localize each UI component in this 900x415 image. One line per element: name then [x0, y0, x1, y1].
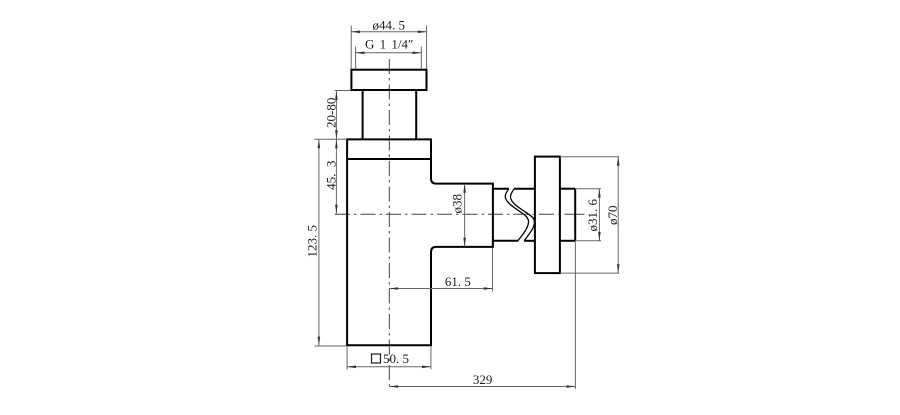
svg-text:ø44. 5: ø44. 5 — [372, 18, 405, 33]
svg-text:329: 329 — [473, 372, 493, 387]
svg-text:61. 5: 61. 5 — [445, 274, 471, 289]
svg-text:45. 3: 45. 3 — [323, 161, 338, 190]
svg-text:ø70: ø70 — [605, 205, 620, 225]
svg-text:ø38: ø38 — [450, 194, 465, 214]
svg-text:ø31. 6: ø31. 6 — [585, 198, 600, 231]
svg-text:20-80: 20-80 — [323, 98, 338, 128]
svg-text:123. 5: 123. 5 — [305, 225, 320, 258]
svg-text:50. 5: 50. 5 — [383, 351, 409, 366]
svg-text:G 1 1/4″: G 1 1/4″ — [365, 37, 413, 52]
